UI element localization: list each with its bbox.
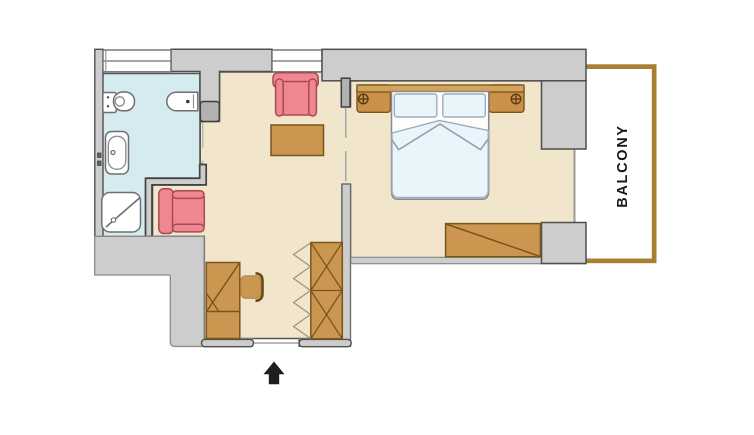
svg-text:BALCONY: BALCONY (615, 124, 631, 208)
